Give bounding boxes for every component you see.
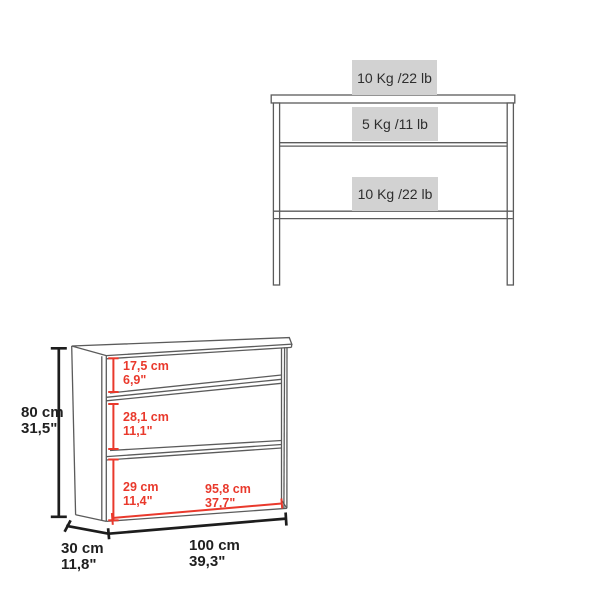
depth-metric: 30 cm	[61, 541, 104, 557]
middle-opening-dimension-line	[108, 404, 118, 449]
height-dimension-label: 80 cm 31,5"	[21, 405, 64, 437]
depth-dimension-line	[65, 520, 109, 533]
front-view-upper-shelf	[280, 143, 508, 146]
load-badge-tabletop: 10 Kg /22 lb	[352, 60, 437, 95]
top-opening-dimension-line	[108, 358, 118, 392]
middle-opening-dimension-label: 28,1 cm 11,1"	[123, 410, 169, 439]
front-view-left-leg	[273, 103, 279, 285]
width-dimension-label: 100 cm 39,3"	[189, 538, 240, 570]
diagram-linework	[0, 0, 600, 600]
bottom-opening-imperial: 11,4"	[123, 494, 158, 508]
iso-right-panel	[282, 347, 288, 508]
middle-opening-metric: 28,1 cm	[123, 410, 169, 424]
top-opening-imperial: 6,9"	[123, 373, 169, 387]
top-opening-metric: 17,5 cm	[123, 359, 169, 373]
width-metric: 100 cm	[189, 538, 240, 554]
inner-width-imperial: 37,7"	[205, 496, 251, 510]
front-view-right-leg	[507, 103, 513, 285]
top-opening-dimension-label: 17,5 cm 6,9"	[123, 359, 169, 388]
iso-lower-shelf	[106, 441, 281, 461]
height-imperial: 31,5"	[21, 421, 64, 437]
iso-left-panel	[72, 346, 107, 521]
inner-width-dimension-label: 95,8 cm 37,7"	[205, 482, 251, 511]
front-view-tabletop	[271, 95, 515, 103]
depth-dimension-label: 30 cm 11,8"	[61, 541, 104, 573]
inner-width-metric: 95,8 cm	[205, 482, 251, 496]
iso-view-drawing	[72, 338, 292, 522]
load-badge-lower-shelf: 10 Kg /22 lb	[352, 177, 438, 211]
middle-opening-imperial: 11,1"	[123, 424, 169, 438]
iso-top-face	[72, 338, 292, 356]
height-metric: 80 cm	[21, 405, 64, 421]
bottom-opening-dimension-line	[108, 460, 118, 521]
load-badge-upper-shelf: 5 Kg /11 lb	[352, 107, 438, 141]
bottom-opening-metric: 29 cm	[123, 480, 158, 494]
furniture-dimension-sheet: 10 Kg /22 lb 5 Kg /11 lb 10 Kg /22 lb 80…	[0, 0, 600, 600]
bottom-opening-dimension-label: 29 cm 11,4"	[123, 480, 158, 509]
depth-imperial: 11,8"	[61, 557, 104, 573]
front-view-lower-shelf	[274, 211, 513, 218]
width-imperial: 39,3"	[189, 554, 240, 570]
